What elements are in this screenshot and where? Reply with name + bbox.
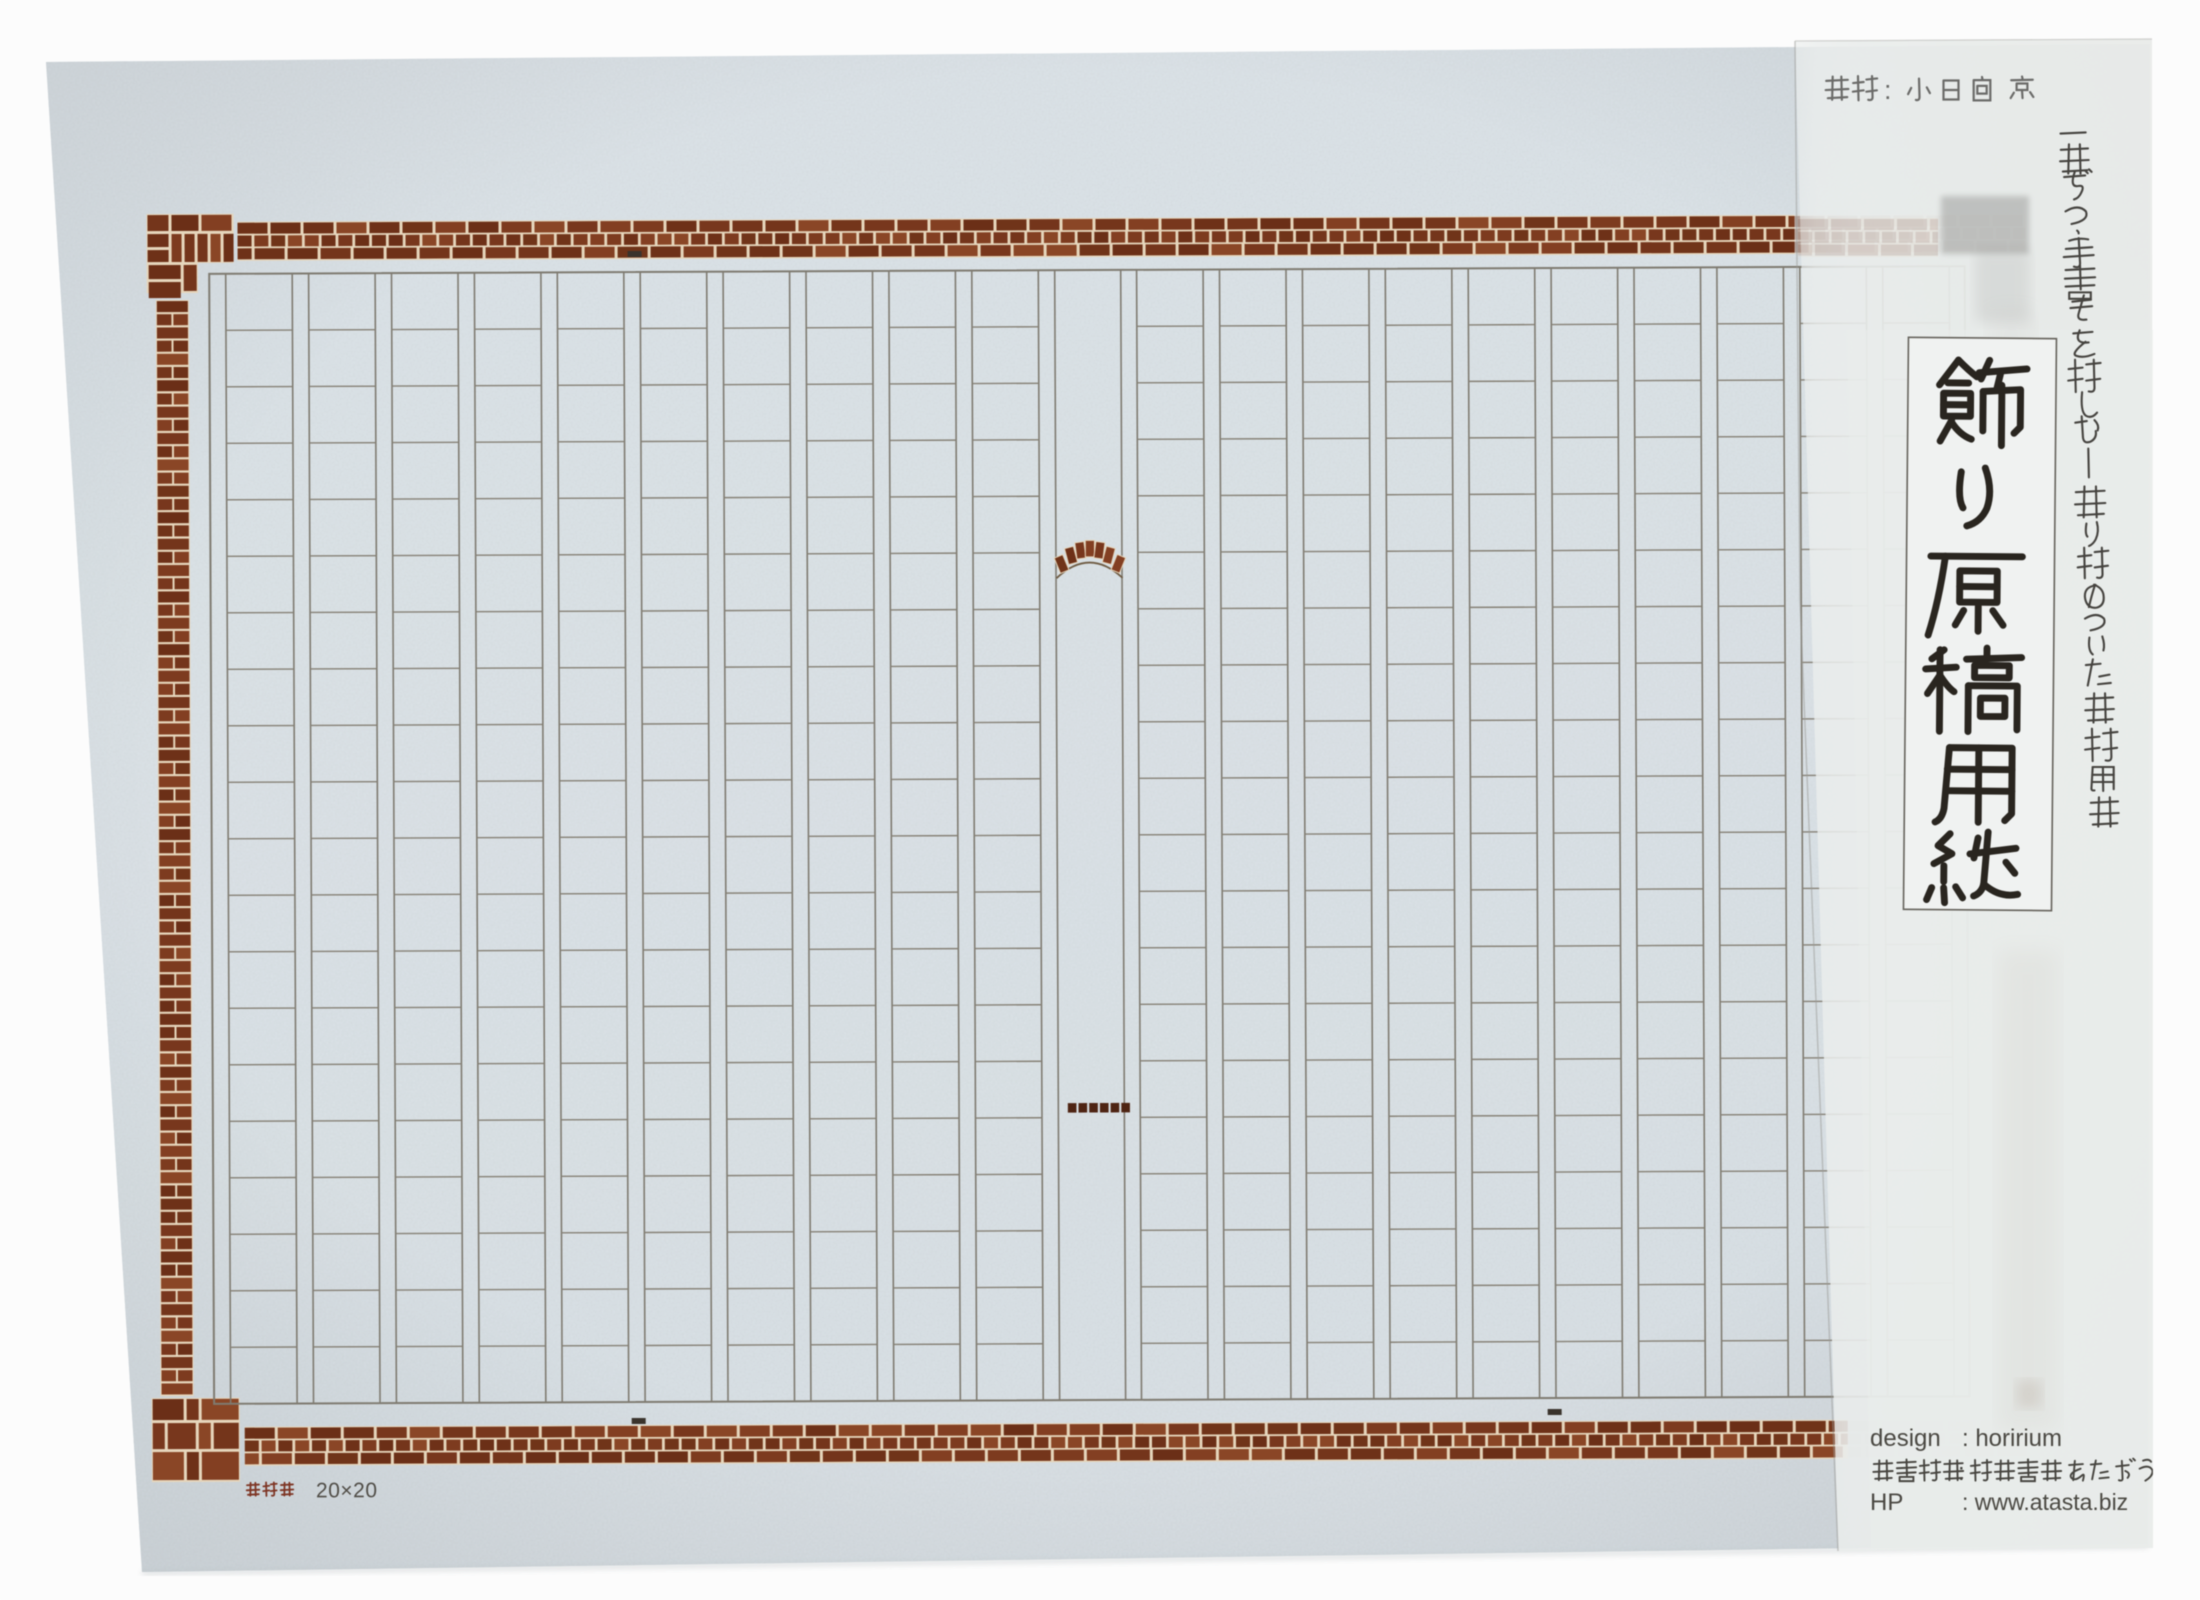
svg-text:20×20: 20×20 <box>316 1479 378 1502</box>
svg-text:: horirium: : horirium <box>1962 1425 2062 1452</box>
svg-text:: www.atasta.biz: : www.atasta.biz <box>1962 1489 2128 1515</box>
svg-text:HP: HP <box>1870 1489 1903 1516</box>
svg-text:design: design <box>1870 1425 1941 1452</box>
svg-text::: : <box>1958 1459 1965 1486</box>
svg-text::: : <box>1884 75 1892 105</box>
